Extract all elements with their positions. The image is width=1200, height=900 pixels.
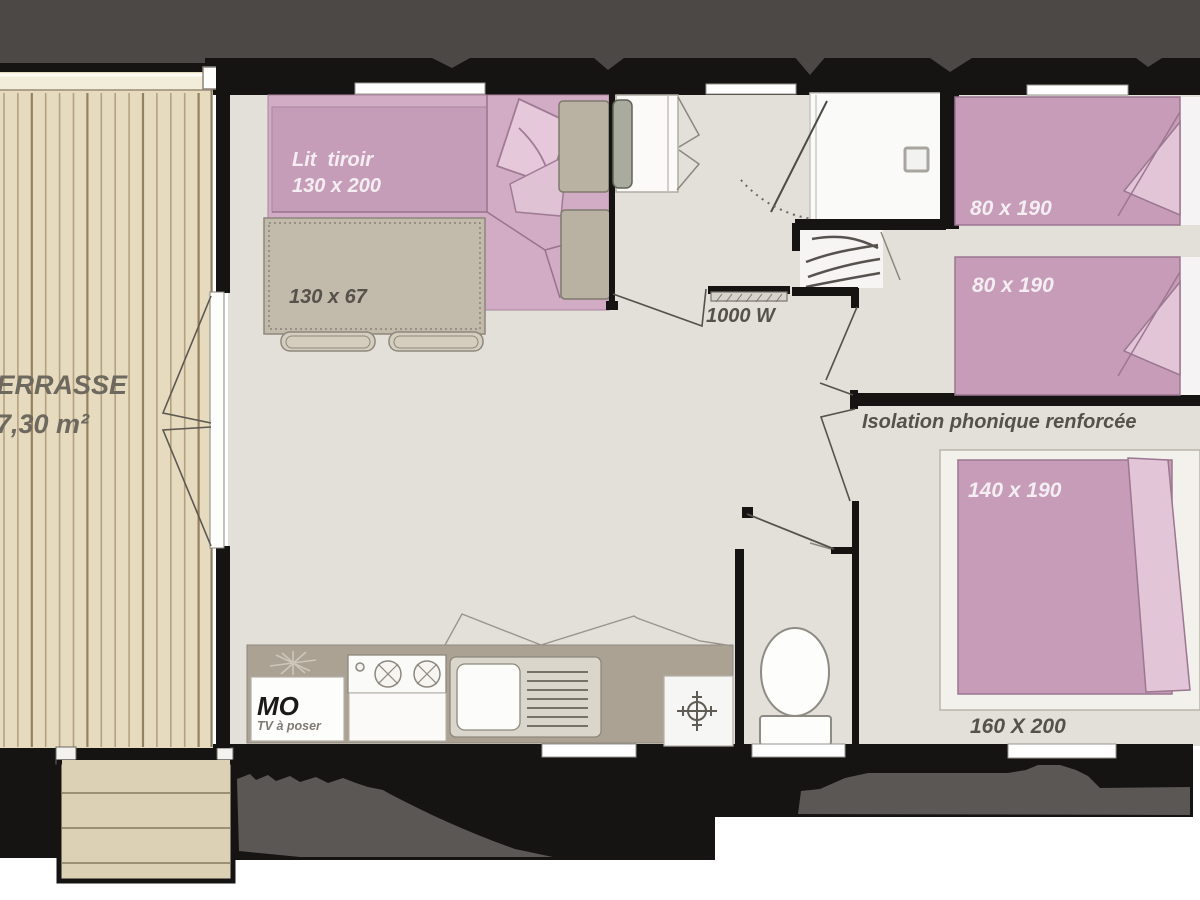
svg-text:TERRASSE: TERRASSE [0, 370, 128, 400]
svg-text:140 x 190: 140 x 190 [968, 479, 1062, 502]
svg-text:TV à poser: TV à poser [257, 719, 322, 733]
svg-text:Lit tiroir: Lit tiroir [292, 149, 374, 171]
svg-text:160 X 200: 160 X 200 [970, 715, 1066, 738]
svg-text:Isolation phonique renforcée: Isolation phonique renforcée [862, 411, 1136, 433]
svg-text:7,30 m²: 7,30 m² [0, 409, 90, 439]
svg-text:80 x 190: 80 x 190 [972, 274, 1054, 297]
svg-text:130 x 200: 130 x 200 [292, 175, 381, 197]
svg-text:MO: MO [257, 691, 299, 721]
svg-text:80 x 190: 80 x 190 [970, 197, 1052, 220]
svg-text:1000 W: 1000 W [706, 305, 777, 327]
svg-text:130 x 67: 130 x 67 [289, 286, 368, 308]
